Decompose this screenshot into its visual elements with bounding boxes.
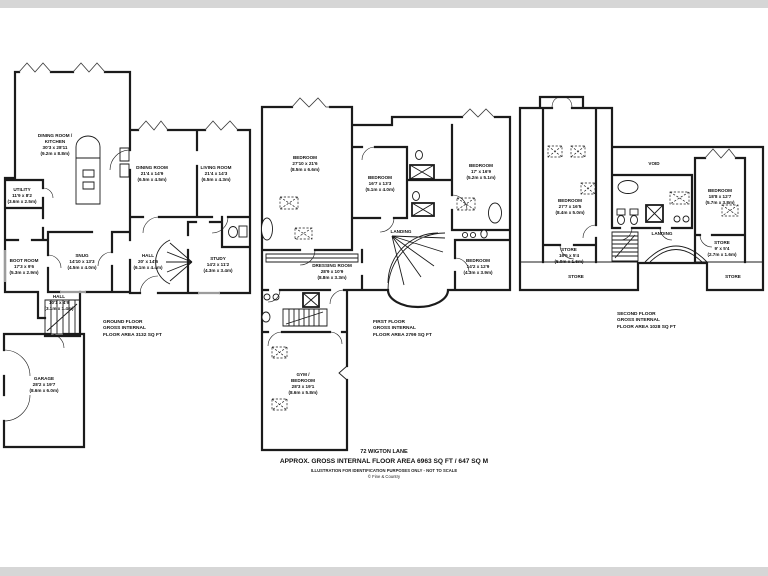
room-size-metric: (8.8m x 3.3m) (312, 275, 352, 281)
floorplan-linework (0, 0, 768, 576)
room-name: LANDING (652, 231, 673, 237)
room-name: LANDING (391, 229, 412, 235)
room-label-gym-bedroom: GYM / BEDROOM 28'3 x 19'1 (8.6m x 5.8m) (288, 372, 317, 396)
room-label-living-room: LIVING ROOM 21'4 x 14'3 (6.5m x 4.3m) (201, 165, 232, 183)
room-label-study: STUDY 14'2 x 11'2 (4.3m x 3.4m) (203, 256, 232, 274)
room-size-metric: (5.2m x 5.1m) (466, 175, 495, 181)
room-size-metric: (9.2m x 8.8m) (38, 151, 72, 157)
caption-line: FLOOR AREA 3132 SQ FT (103, 333, 162, 339)
room-size-metric: (4.3m x 3.4m) (203, 268, 232, 274)
room-label-hall: HALL 20' x 14'6 (6.1m x 4.4m) (133, 253, 162, 271)
room-size-metric: (2.7m x 1.6m) (707, 252, 736, 258)
room-size-metric: (5.3m x 2.9m) (9, 270, 38, 276)
room-size-metric: (4.5m x 4.0m) (67, 265, 96, 271)
disclaimer-text: ILLUSTRATION FOR IDENTIFICATION PURPOSES… (0, 468, 768, 473)
caption-ground-floor: GROUND FLOOR GROSS INTERNAL FLOOR AREA 3… (103, 320, 162, 339)
room-size-metric: (6.5m x 4.3m) (201, 177, 232, 183)
total-floor-area: APPROX. GROSS INTERNAL FLOOR AREA 6963 S… (0, 458, 768, 465)
caption-line: FLOOR AREA 1028 SQ FT (617, 325, 676, 331)
room-label-dining-room: DINING ROOM 21'4 x 14'9 (6.5m x 4.5m) (136, 165, 168, 183)
room-size-metric: (8.6m x 5.8m) (288, 390, 317, 396)
room-label-landing-second: LANDING (652, 231, 673, 237)
room-label-dining-kitchen: DINING ROOM / KITCHEN 30'3 x 28'11 (9.2m… (38, 133, 72, 157)
room-label-bedroom-5: BEDROOM 27'7 x 16'5 (8.4m x 5.0m) (555, 198, 584, 216)
room-label-void: VOID (648, 161, 659, 167)
room-size-metric: (5.7m x 3.8m) (705, 200, 734, 206)
agency-credit: © Fine & Country (0, 474, 768, 479)
room-label-bedroom-4: BEDROOM 14'2 x 12'9 (4.3m x 3.9m) (463, 258, 492, 276)
room-size-metric: (6.5m x 4.5m) (136, 177, 168, 183)
room-label-landing-first: LANDING (391, 229, 412, 235)
room-label-store-1: STORE 16'5 x 5'4 (5.0m x 1.6m) (554, 247, 583, 265)
caption-first-floor: FIRST FLOOR GROSS INTERNAL FLOOR AREA 27… (373, 320, 432, 339)
room-size-metric: (3.6m x 2.5m) (7, 199, 36, 205)
room-label-dressing-room: DRESSING ROOM 28'9 x 10'9 (8.8m x 3.3m) (312, 263, 352, 281)
room-label-boot-room: BOOT ROOM 17'3 x 9'6 (5.3m x 2.9m) (9, 258, 38, 276)
room-label-store-4: STORE (725, 274, 741, 280)
room-label-bedroom-1: BEDROOM 27'10 x 21'6 (8.5m x 6.6m) (290, 155, 319, 173)
room-label-utility: UTILITY 11'9 x 8'2 (3.6m x 2.5m) (7, 187, 36, 205)
room-size-metric: (5.0m x 1.6m) (554, 259, 583, 265)
floorplan-page: DINING ROOM / KITCHEN 30'3 x 28'11 (9.2m… (0, 0, 768, 576)
caption-second-floor: SECOND FLOOR GROSS INTERNAL FLOOR AREA 1… (617, 312, 676, 331)
room-label-garage: GARAGE 28'2 x 19'7 (8.6m x 6.0m) (29, 376, 58, 394)
room-label-bedroom-3: BEDROOM 17' x 16'9 (5.2m x 5.1m) (466, 163, 495, 181)
room-name: VOID (648, 161, 659, 167)
room-size-metric: (8.4m x 5.0m) (555, 210, 584, 216)
room-label-snug: SNUG 14'10 x 13'3 (4.5m x 4.0m) (67, 253, 96, 271)
room-size-metric: (4.3m x 3.9m) (463, 270, 492, 276)
room-label-hall-small: HALL 10'1 x 4'9 (3.1m x 1.4m) (44, 294, 73, 312)
room-label-bedroom-2: BEDROOM 16'7 x 13'3 (5.1m x 4.0m) (365, 175, 394, 193)
caption-line: FLOOR AREA 2799 SQ FT (373, 333, 432, 339)
room-size-metric: (8.5m x 6.6m) (290, 167, 319, 173)
room-size-metric: (6.1m x 4.4m) (133, 265, 162, 271)
room-label-store-2: STORE 9' x 5'4 (2.7m x 1.6m) (707, 240, 736, 258)
room-name: STORE (725, 274, 741, 280)
room-label-store-3: STORE (568, 274, 584, 280)
room-size-metric: (8.6m x 6.0m) (29, 388, 58, 394)
room-size-metric: (5.1m x 4.0m) (365, 187, 394, 193)
property-address: 72 WIGTON LANE (0, 449, 768, 455)
room-name: STORE (568, 274, 584, 280)
room-label-bedroom-6: BEDROOM 18'8 x 12'7 (5.7m x 3.8m) (705, 188, 734, 206)
room-size-metric: (3.1m x 1.4m) (44, 306, 73, 312)
